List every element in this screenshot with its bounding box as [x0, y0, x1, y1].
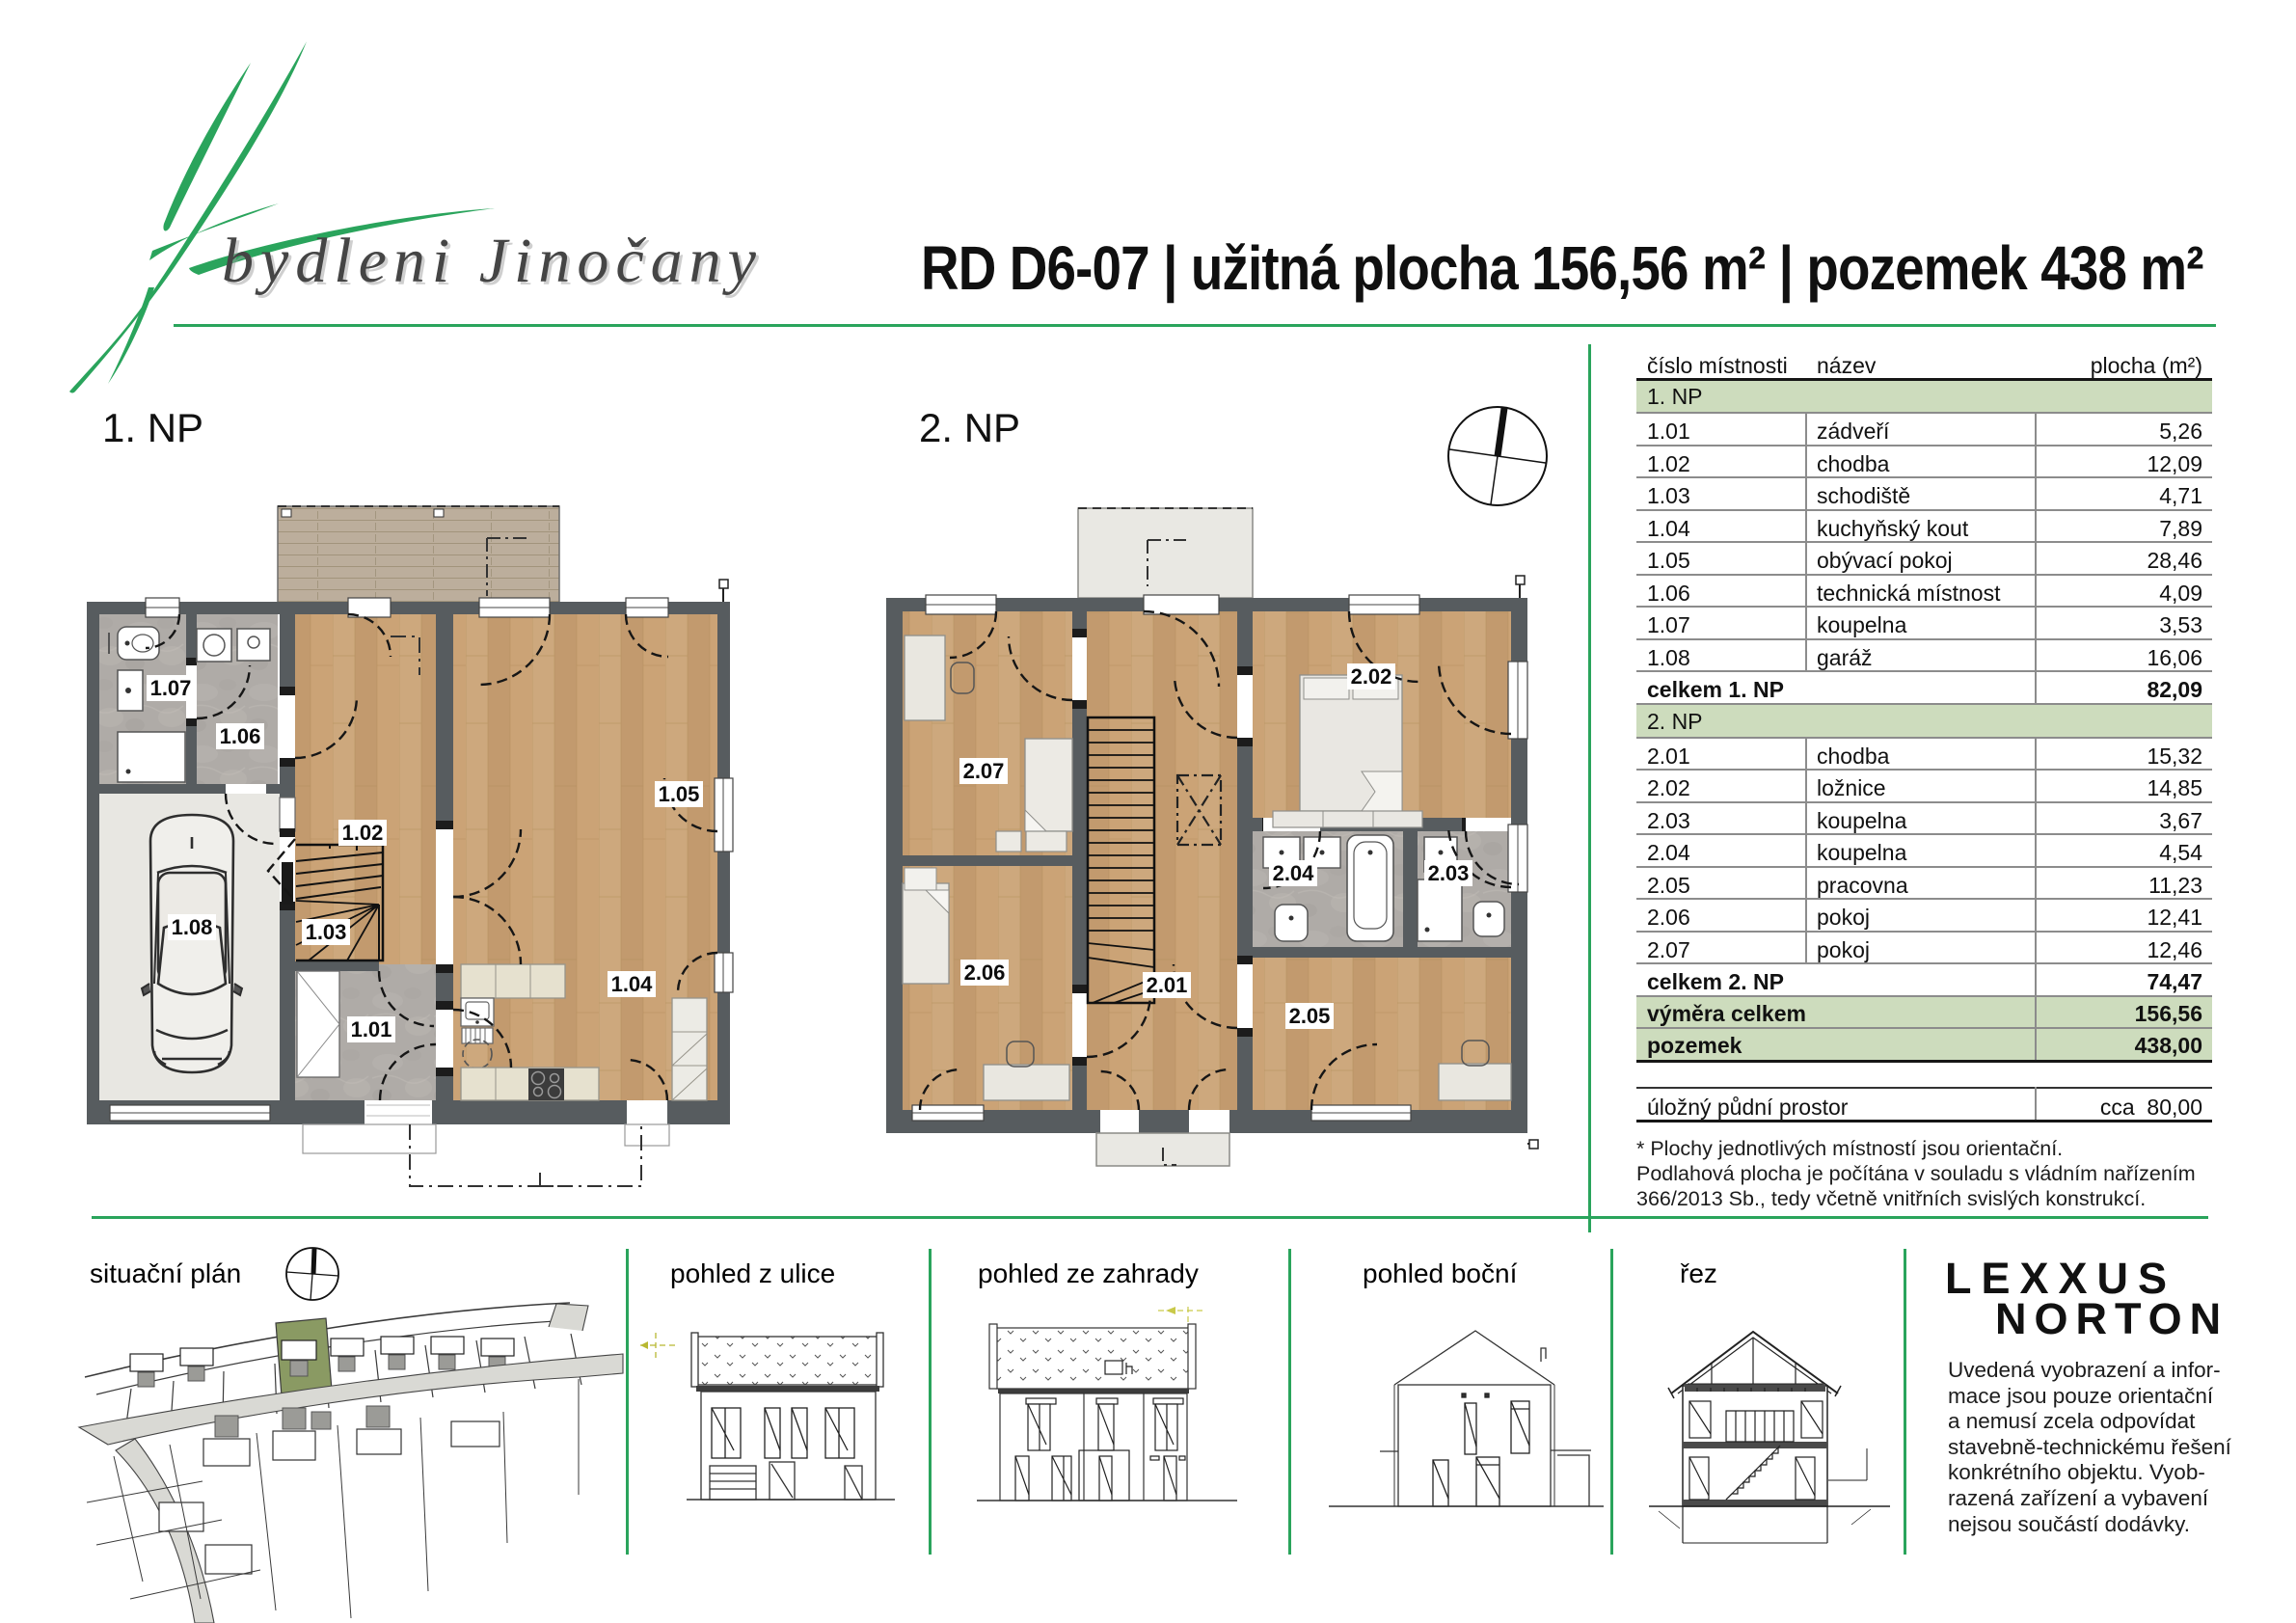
svg-text:1.01: 1.01	[351, 1017, 392, 1041]
svg-text:1.02: 1.02	[342, 821, 384, 845]
svg-text:1.08: 1.08	[172, 915, 213, 939]
svg-text:2.03: 2.03	[1428, 861, 1470, 885]
svg-text:1.03: 1.03	[306, 920, 347, 944]
svg-text:1.07: 1.07	[150, 676, 192, 700]
svg-text:2.06: 2.06	[964, 960, 1006, 985]
svg-text:2.05: 2.05	[1289, 1004, 1331, 1028]
svg-text:2.01: 2.01	[1147, 973, 1188, 997]
svg-text:2.02: 2.02	[1351, 664, 1392, 689]
svg-text:2.04: 2.04	[1273, 861, 1315, 885]
svg-text:1.05: 1.05	[659, 782, 700, 806]
svg-text:1.06: 1.06	[220, 724, 261, 748]
svg-text:2.07: 2.07	[963, 759, 1005, 783]
svg-text:1.04: 1.04	[611, 972, 654, 996]
